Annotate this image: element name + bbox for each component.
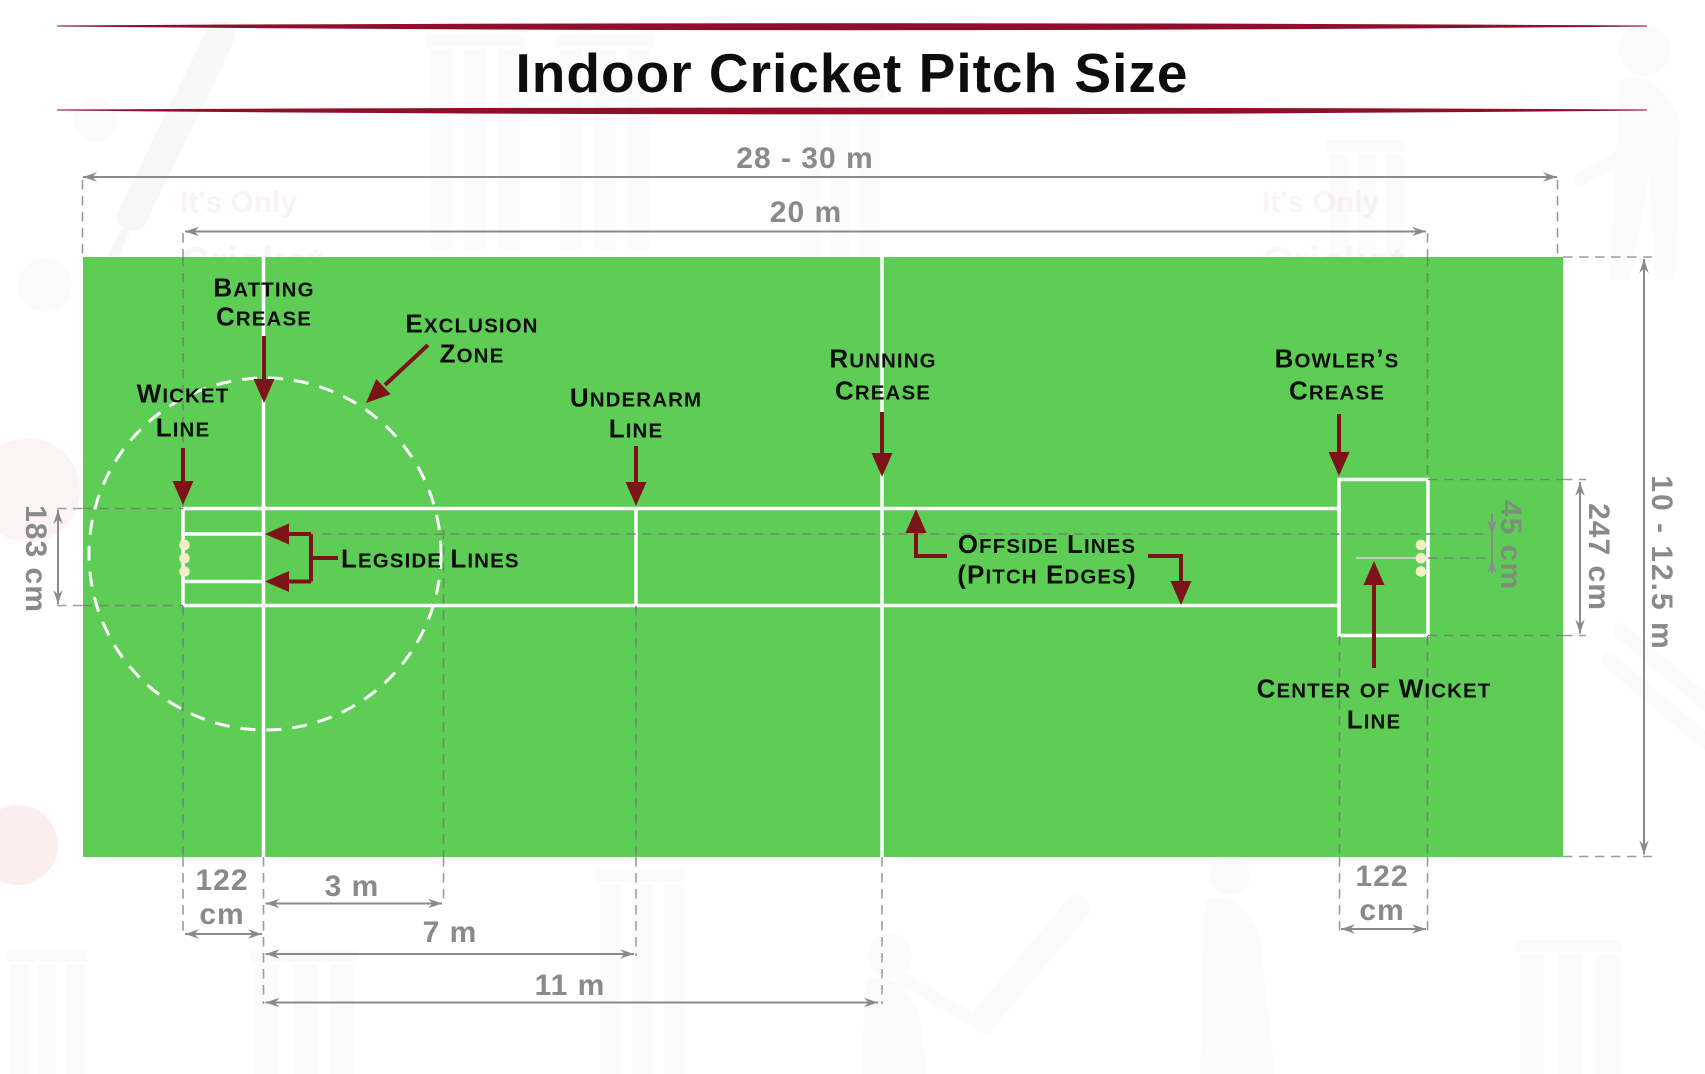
svg-text:20 m: 20 m <box>770 196 842 229</box>
svg-text:183 cm: 183 cm <box>19 505 52 613</box>
svg-text:10 - 12.5 m: 10 - 12.5 m <box>1645 475 1678 650</box>
svg-text:7 m: 7 m <box>423 916 478 949</box>
svg-text:It's Only: It's Only <box>1262 186 1379 219</box>
svg-text:247 cm: 247 cm <box>1582 503 1615 611</box>
svg-text:122: 122 <box>1355 860 1408 893</box>
svg-text:45 cm: 45 cm <box>1494 500 1527 590</box>
svg-text:11 m: 11 m <box>535 969 606 1002</box>
svg-text:It's Only: It's Only <box>180 186 297 219</box>
svg-text:cm: cm <box>199 898 244 931</box>
svg-text:3 m: 3 m <box>325 870 380 903</box>
svg-text:Indoor Cricket Pitch Size: Indoor Cricket Pitch Size <box>516 42 1189 104</box>
svg-text:28 - 30 m: 28 - 30 m <box>736 142 873 175</box>
svg-text:122: 122 <box>195 864 248 897</box>
svg-text:cm: cm <box>1359 894 1404 927</box>
